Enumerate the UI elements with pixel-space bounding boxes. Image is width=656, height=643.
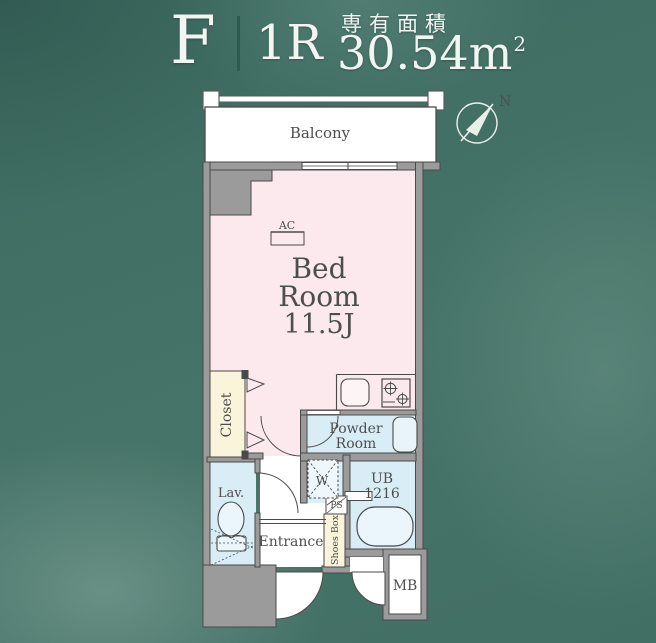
- entrance-door-arc: [276, 572, 323, 619]
- closet-label: Closet: [219, 392, 235, 437]
- lavatory-label: Lav.: [218, 486, 244, 501]
- floorplan-page: F 1R 専有面積 30.54m2 N: [0, 0, 656, 643]
- powder-doorway: [307, 411, 340, 415]
- pipe-space-label: PS: [330, 501, 342, 511]
- kitchen-sink: [341, 379, 369, 406]
- compass-north-label: N: [499, 94, 511, 110]
- meter-box-door-arc: [352, 572, 385, 605]
- mb-recess: [350, 557, 383, 572]
- shoes-box-label: Shoes Box: [330, 514, 341, 565]
- compass-icon: N: [457, 94, 511, 143]
- washbasin-icon: [393, 417, 417, 452]
- unit-bath-label-2: 1216: [364, 486, 400, 502]
- powder-label-1: Powder: [329, 421, 383, 437]
- unit-bath-label-1: UB: [371, 471, 393, 487]
- meter-box-label: MB: [393, 578, 418, 594]
- entrance-label: Entrance: [258, 534, 323, 550]
- floor-plan: N: [0, 0, 656, 643]
- ac-label: AC: [278, 219, 295, 232]
- balcony-label: Balcony: [290, 124, 351, 142]
- powder-label-2: Room: [336, 436, 377, 452]
- ac-unit: [271, 232, 304, 245]
- bedroom-size-label: 11.5J: [284, 309, 355, 340]
- washer-label: W: [316, 474, 329, 488]
- bathtub-icon: [357, 507, 413, 546]
- stove-icon: [382, 379, 410, 407]
